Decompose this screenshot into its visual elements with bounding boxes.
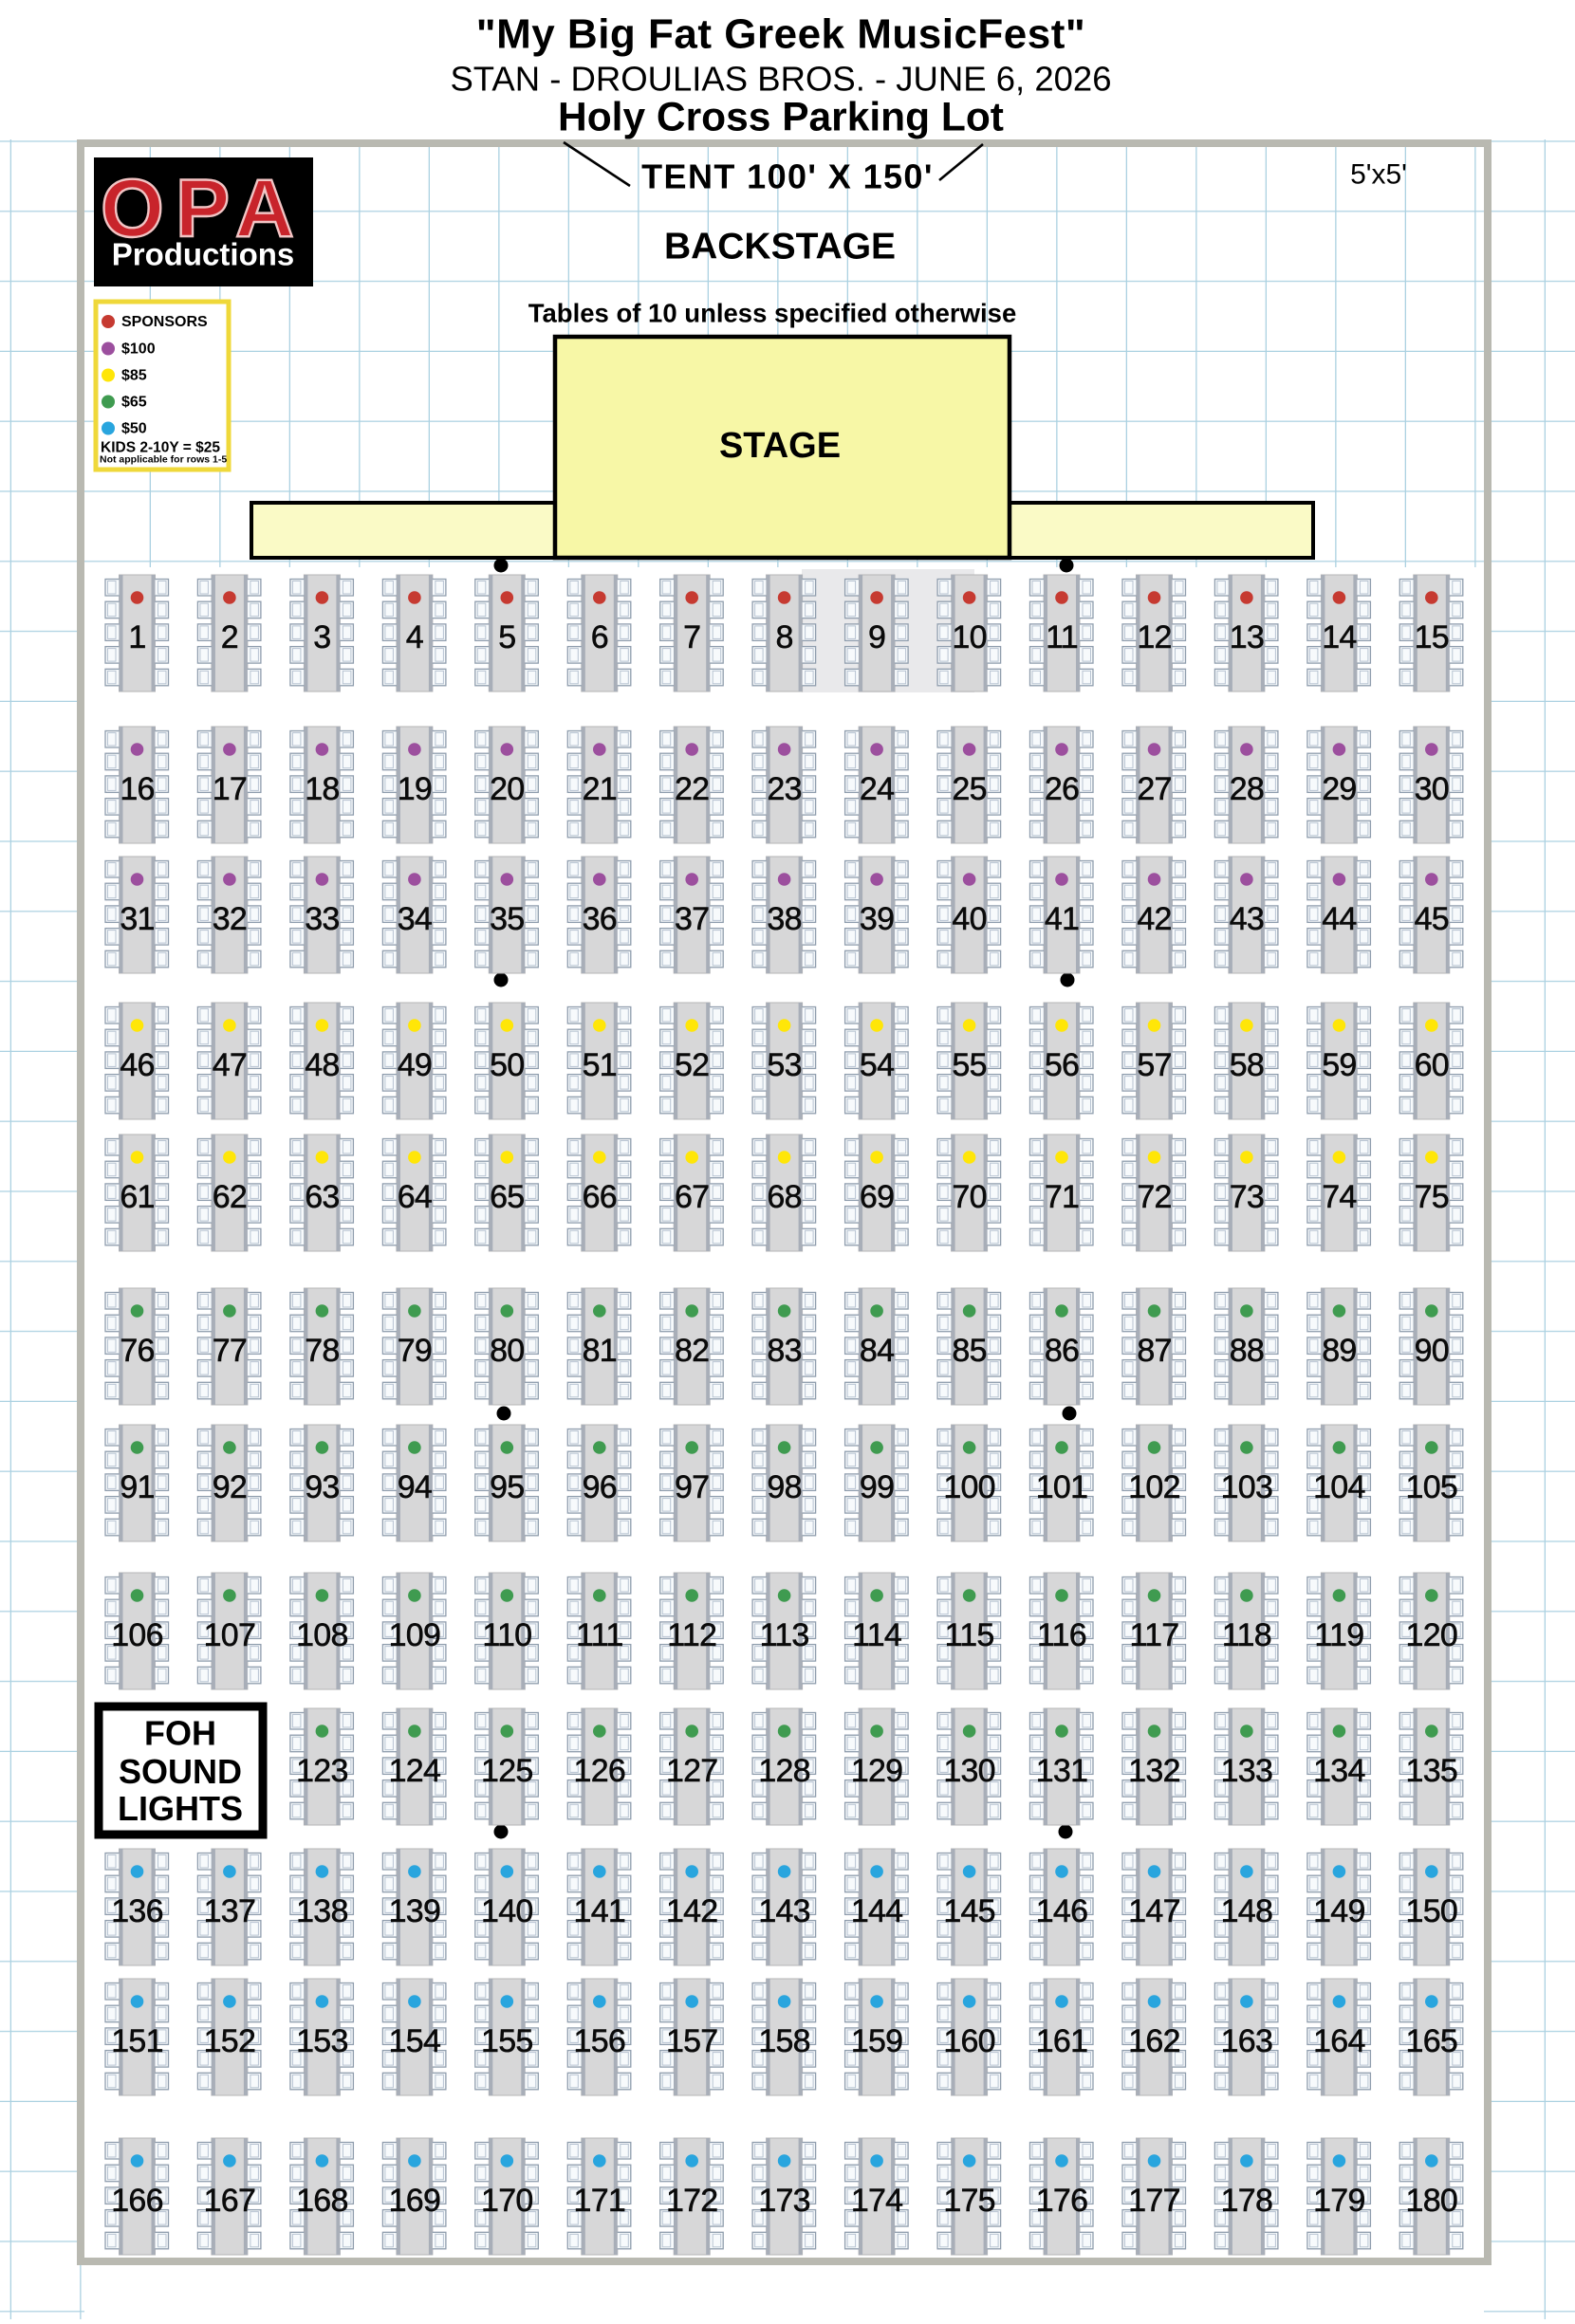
svg-text:119: 119 <box>1314 1617 1363 1653</box>
svg-text:136: 136 <box>111 1893 162 1929</box>
svg-text:120: 120 <box>1406 1617 1457 1653</box>
svg-text:11: 11 <box>1046 619 1078 655</box>
svg-text:FOH: FOH <box>144 1714 216 1753</box>
svg-text:85: 85 <box>952 1333 986 1369</box>
svg-text:95: 95 <box>490 1469 524 1505</box>
svg-text:174: 174 <box>851 2183 902 2219</box>
svg-text:144: 144 <box>851 1893 902 1929</box>
svg-text:"My Big Fat Greek MusicFest": "My Big Fat Greek MusicFest" <box>476 11 1086 58</box>
svg-text:176: 176 <box>1036 2183 1087 2219</box>
svg-text:10: 10 <box>952 619 986 655</box>
svg-text:108: 108 <box>296 1617 347 1653</box>
svg-text:65: 65 <box>490 1179 524 1215</box>
svg-text:73: 73 <box>1230 1179 1264 1215</box>
svg-text:66: 66 <box>583 1179 617 1215</box>
svg-text:46: 46 <box>120 1047 154 1083</box>
svg-text:22: 22 <box>675 771 709 807</box>
svg-text:165: 165 <box>1406 2023 1457 2059</box>
svg-text:STAGE: STAGE <box>719 426 841 466</box>
svg-text:70: 70 <box>952 1179 986 1215</box>
svg-text:104: 104 <box>1313 1469 1364 1505</box>
svg-text:166: 166 <box>111 2183 162 2219</box>
svg-text:123: 123 <box>296 1753 347 1789</box>
svg-text:STAN - DROULIAS BROS. - JUNE 6: STAN - DROULIAS BROS. - JUNE 6, 2026 <box>450 60 1111 99</box>
svg-text:58: 58 <box>1230 1047 1264 1083</box>
svg-text:77: 77 <box>213 1333 247 1369</box>
svg-text:16: 16 <box>120 771 154 807</box>
svg-text:112: 112 <box>667 1617 716 1653</box>
svg-text:69: 69 <box>860 1179 894 1215</box>
svg-text:138: 138 <box>296 1893 347 1929</box>
svg-text:170: 170 <box>481 2183 532 2219</box>
svg-text:38: 38 <box>767 901 801 937</box>
svg-text:118: 118 <box>1222 1617 1271 1653</box>
svg-text:40: 40 <box>952 901 986 937</box>
svg-text:156: 156 <box>574 2023 625 2059</box>
svg-text:59: 59 <box>1322 1047 1356 1083</box>
svg-text:57: 57 <box>1137 1047 1171 1083</box>
svg-text:92: 92 <box>213 1469 247 1505</box>
svg-text:164: 164 <box>1313 2023 1364 2059</box>
svg-text:86: 86 <box>1045 1333 1079 1369</box>
svg-text:153: 153 <box>296 2023 347 2059</box>
svg-text:31: 31 <box>120 901 154 937</box>
svg-text:51: 51 <box>583 1047 617 1083</box>
svg-text:35: 35 <box>490 901 524 937</box>
svg-text:Productions: Productions <box>112 237 295 272</box>
svg-text:146: 146 <box>1036 1893 1087 1929</box>
svg-text:137: 137 <box>204 1893 255 1929</box>
svg-text:60: 60 <box>1415 1047 1449 1083</box>
svg-text:Tables of 10 unless specified: Tables of 10 unless specified otherwise <box>528 299 1017 328</box>
svg-text:115: 115 <box>945 1617 994 1653</box>
svg-text:61: 61 <box>120 1179 154 1215</box>
svg-text:127: 127 <box>666 1753 717 1789</box>
svg-text:$100: $100 <box>121 341 156 358</box>
svg-text:42: 42 <box>1137 901 1171 937</box>
svg-text:159: 159 <box>851 2023 902 2059</box>
svg-text:139: 139 <box>389 1893 440 1929</box>
svg-text:67: 67 <box>675 1179 709 1215</box>
svg-text:$50: $50 <box>121 421 147 437</box>
svg-text:97: 97 <box>675 1469 709 1505</box>
svg-text:71: 71 <box>1045 1179 1079 1215</box>
svg-text:Not applicable for rows 1-5: Not applicable for rows 1-5 <box>100 454 227 466</box>
svg-text:47: 47 <box>213 1047 247 1083</box>
svg-text:140: 140 <box>481 1893 532 1929</box>
svg-text:63: 63 <box>305 1179 339 1215</box>
svg-text:LIGHTS: LIGHTS <box>118 1789 243 1828</box>
svg-text:113: 113 <box>760 1617 809 1653</box>
svg-text:75: 75 <box>1415 1179 1449 1215</box>
svg-text:96: 96 <box>583 1469 617 1505</box>
svg-text:105: 105 <box>1406 1469 1457 1505</box>
svg-text:45: 45 <box>1415 901 1449 937</box>
svg-text:37: 37 <box>675 901 709 937</box>
svg-text:133: 133 <box>1221 1753 1272 1789</box>
svg-text:150: 150 <box>1406 1893 1457 1929</box>
svg-text:14: 14 <box>1322 619 1356 655</box>
svg-text:80: 80 <box>490 1333 524 1369</box>
svg-text:74: 74 <box>1322 1179 1356 1215</box>
svg-text:29: 29 <box>1322 771 1356 807</box>
svg-text:91: 91 <box>120 1469 154 1505</box>
svg-text:50: 50 <box>490 1047 524 1083</box>
svg-text:6: 6 <box>591 619 608 655</box>
svg-text:117: 117 <box>1130 1617 1179 1653</box>
svg-text:98: 98 <box>767 1469 801 1505</box>
svg-text:148: 148 <box>1221 1893 1272 1929</box>
svg-text:169: 169 <box>389 2183 440 2219</box>
svg-text:15: 15 <box>1415 619 1449 655</box>
svg-text:13: 13 <box>1230 619 1264 655</box>
svg-text:154: 154 <box>389 2023 440 2059</box>
svg-text:12: 12 <box>1137 619 1171 655</box>
svg-text:84: 84 <box>860 1333 894 1369</box>
svg-text:1: 1 <box>128 619 145 655</box>
svg-text:54: 54 <box>860 1047 894 1083</box>
svg-text:53: 53 <box>767 1047 801 1083</box>
svg-text:110: 110 <box>482 1617 531 1653</box>
svg-text:18: 18 <box>305 771 339 807</box>
svg-text:128: 128 <box>758 1753 809 1789</box>
svg-text:19: 19 <box>398 771 432 807</box>
svg-text:126: 126 <box>574 1753 625 1789</box>
svg-text:62: 62 <box>213 1179 247 1215</box>
svg-text:142: 142 <box>666 1893 717 1929</box>
svg-text:175: 175 <box>943 2183 994 2219</box>
svg-text:111: 111 <box>576 1617 622 1653</box>
svg-text:90: 90 <box>1415 1333 1449 1369</box>
svg-text:83: 83 <box>767 1333 801 1369</box>
svg-text:32: 32 <box>213 901 247 937</box>
svg-text:24: 24 <box>860 771 894 807</box>
svg-text:8: 8 <box>776 619 793 655</box>
svg-text:151: 151 <box>111 2023 162 2059</box>
svg-text:39: 39 <box>860 901 894 937</box>
svg-text:68: 68 <box>767 1179 801 1215</box>
svg-text:163: 163 <box>1221 2023 1272 2059</box>
svg-text:145: 145 <box>943 1893 994 1929</box>
svg-text:168: 168 <box>296 2183 347 2219</box>
svg-text:143: 143 <box>758 1893 809 1929</box>
svg-text:36: 36 <box>583 901 617 937</box>
svg-text:160: 160 <box>943 2023 994 2059</box>
svg-text:44: 44 <box>1322 901 1356 937</box>
svg-text:178: 178 <box>1221 2183 1272 2219</box>
svg-text:129: 129 <box>851 1753 902 1789</box>
svg-text:5: 5 <box>498 619 515 655</box>
svg-text:173: 173 <box>758 2183 809 2219</box>
svg-text:7: 7 <box>683 619 700 655</box>
svg-text:93: 93 <box>305 1469 339 1505</box>
svg-text:20: 20 <box>490 771 524 807</box>
svg-text:26: 26 <box>1045 771 1079 807</box>
svg-text:9: 9 <box>868 619 885 655</box>
svg-text:TENT 100' X 150': TENT 100' X 150' <box>641 157 934 196</box>
svg-text:$85: $85 <box>121 368 147 384</box>
svg-text:87: 87 <box>1137 1333 1171 1369</box>
svg-text:114: 114 <box>852 1617 901 1653</box>
svg-text:56: 56 <box>1045 1047 1079 1083</box>
svg-text:103: 103 <box>1221 1469 1272 1505</box>
svg-text:81: 81 <box>583 1333 617 1369</box>
svg-text:134: 134 <box>1313 1753 1364 1789</box>
svg-text:109: 109 <box>389 1617 440 1653</box>
svg-text:SPONSORS: SPONSORS <box>121 314 208 330</box>
svg-text:78: 78 <box>305 1333 339 1369</box>
svg-text:43: 43 <box>1230 901 1264 937</box>
svg-text:BACKSTAGE: BACKSTAGE <box>664 227 896 267</box>
svg-text:55: 55 <box>952 1047 986 1083</box>
svg-text:107: 107 <box>204 1617 255 1653</box>
svg-text:94: 94 <box>398 1469 432 1505</box>
svg-text:177: 177 <box>1128 2183 1179 2219</box>
svg-text:23: 23 <box>767 771 801 807</box>
svg-text:49: 49 <box>398 1047 432 1083</box>
svg-text:27: 27 <box>1137 771 1171 807</box>
svg-text:157: 157 <box>666 2023 717 2059</box>
svg-text:4: 4 <box>406 619 423 655</box>
svg-text:3: 3 <box>313 619 330 655</box>
svg-text:88: 88 <box>1230 1333 1264 1369</box>
svg-text:99: 99 <box>860 1469 894 1505</box>
svg-text:33: 33 <box>305 901 339 937</box>
svg-text:$65: $65 <box>121 395 147 411</box>
svg-text:52: 52 <box>675 1047 709 1083</box>
svg-text:79: 79 <box>398 1333 432 1369</box>
svg-text:152: 152 <box>204 2023 255 2059</box>
svg-text:76: 76 <box>120 1333 154 1369</box>
svg-text:125: 125 <box>481 1753 532 1789</box>
svg-text:SOUND: SOUND <box>119 1752 242 1791</box>
svg-text:132: 132 <box>1128 1753 1179 1789</box>
svg-text:171: 171 <box>574 2183 625 2219</box>
svg-text:116: 116 <box>1037 1617 1086 1653</box>
svg-text:135: 135 <box>1406 1753 1457 1789</box>
svg-text:21: 21 <box>583 771 617 807</box>
svg-text:41: 41 <box>1045 901 1079 937</box>
svg-text:172: 172 <box>666 2183 717 2219</box>
svg-text:102: 102 <box>1128 1469 1179 1505</box>
svg-text:64: 64 <box>398 1179 432 1215</box>
svg-text:179: 179 <box>1313 2183 1364 2219</box>
svg-text:158: 158 <box>758 2023 809 2059</box>
svg-text:162: 162 <box>1128 2023 1179 2059</box>
svg-text:101: 101 <box>1036 1469 1087 1505</box>
svg-text:147: 147 <box>1128 1893 1179 1929</box>
svg-text:25: 25 <box>952 771 986 807</box>
svg-text:82: 82 <box>675 1333 709 1369</box>
svg-text:155: 155 <box>481 2023 532 2059</box>
svg-text:72: 72 <box>1137 1179 1171 1215</box>
svg-text:30: 30 <box>1415 771 1449 807</box>
svg-text:124: 124 <box>389 1753 440 1789</box>
svg-text:100: 100 <box>943 1469 994 1505</box>
svg-text:161: 161 <box>1036 2023 1087 2059</box>
svg-text:180: 180 <box>1406 2183 1457 2219</box>
svg-text:5'x5': 5'x5' <box>1350 159 1407 191</box>
svg-text:2: 2 <box>221 619 238 655</box>
svg-text:17: 17 <box>213 771 247 807</box>
svg-text:89: 89 <box>1322 1333 1356 1369</box>
svg-text:149: 149 <box>1313 1893 1364 1929</box>
svg-text:141: 141 <box>574 1893 625 1929</box>
svg-text:48: 48 <box>305 1047 339 1083</box>
svg-text:28: 28 <box>1230 771 1264 807</box>
svg-text:167: 167 <box>204 2183 255 2219</box>
svg-text:130: 130 <box>943 1753 994 1789</box>
svg-text:131: 131 <box>1036 1753 1087 1789</box>
svg-text:Holy Cross Parking Lot: Holy Cross Parking Lot <box>558 96 1004 140</box>
svg-text:106: 106 <box>111 1617 162 1653</box>
svg-text:34: 34 <box>398 901 432 937</box>
